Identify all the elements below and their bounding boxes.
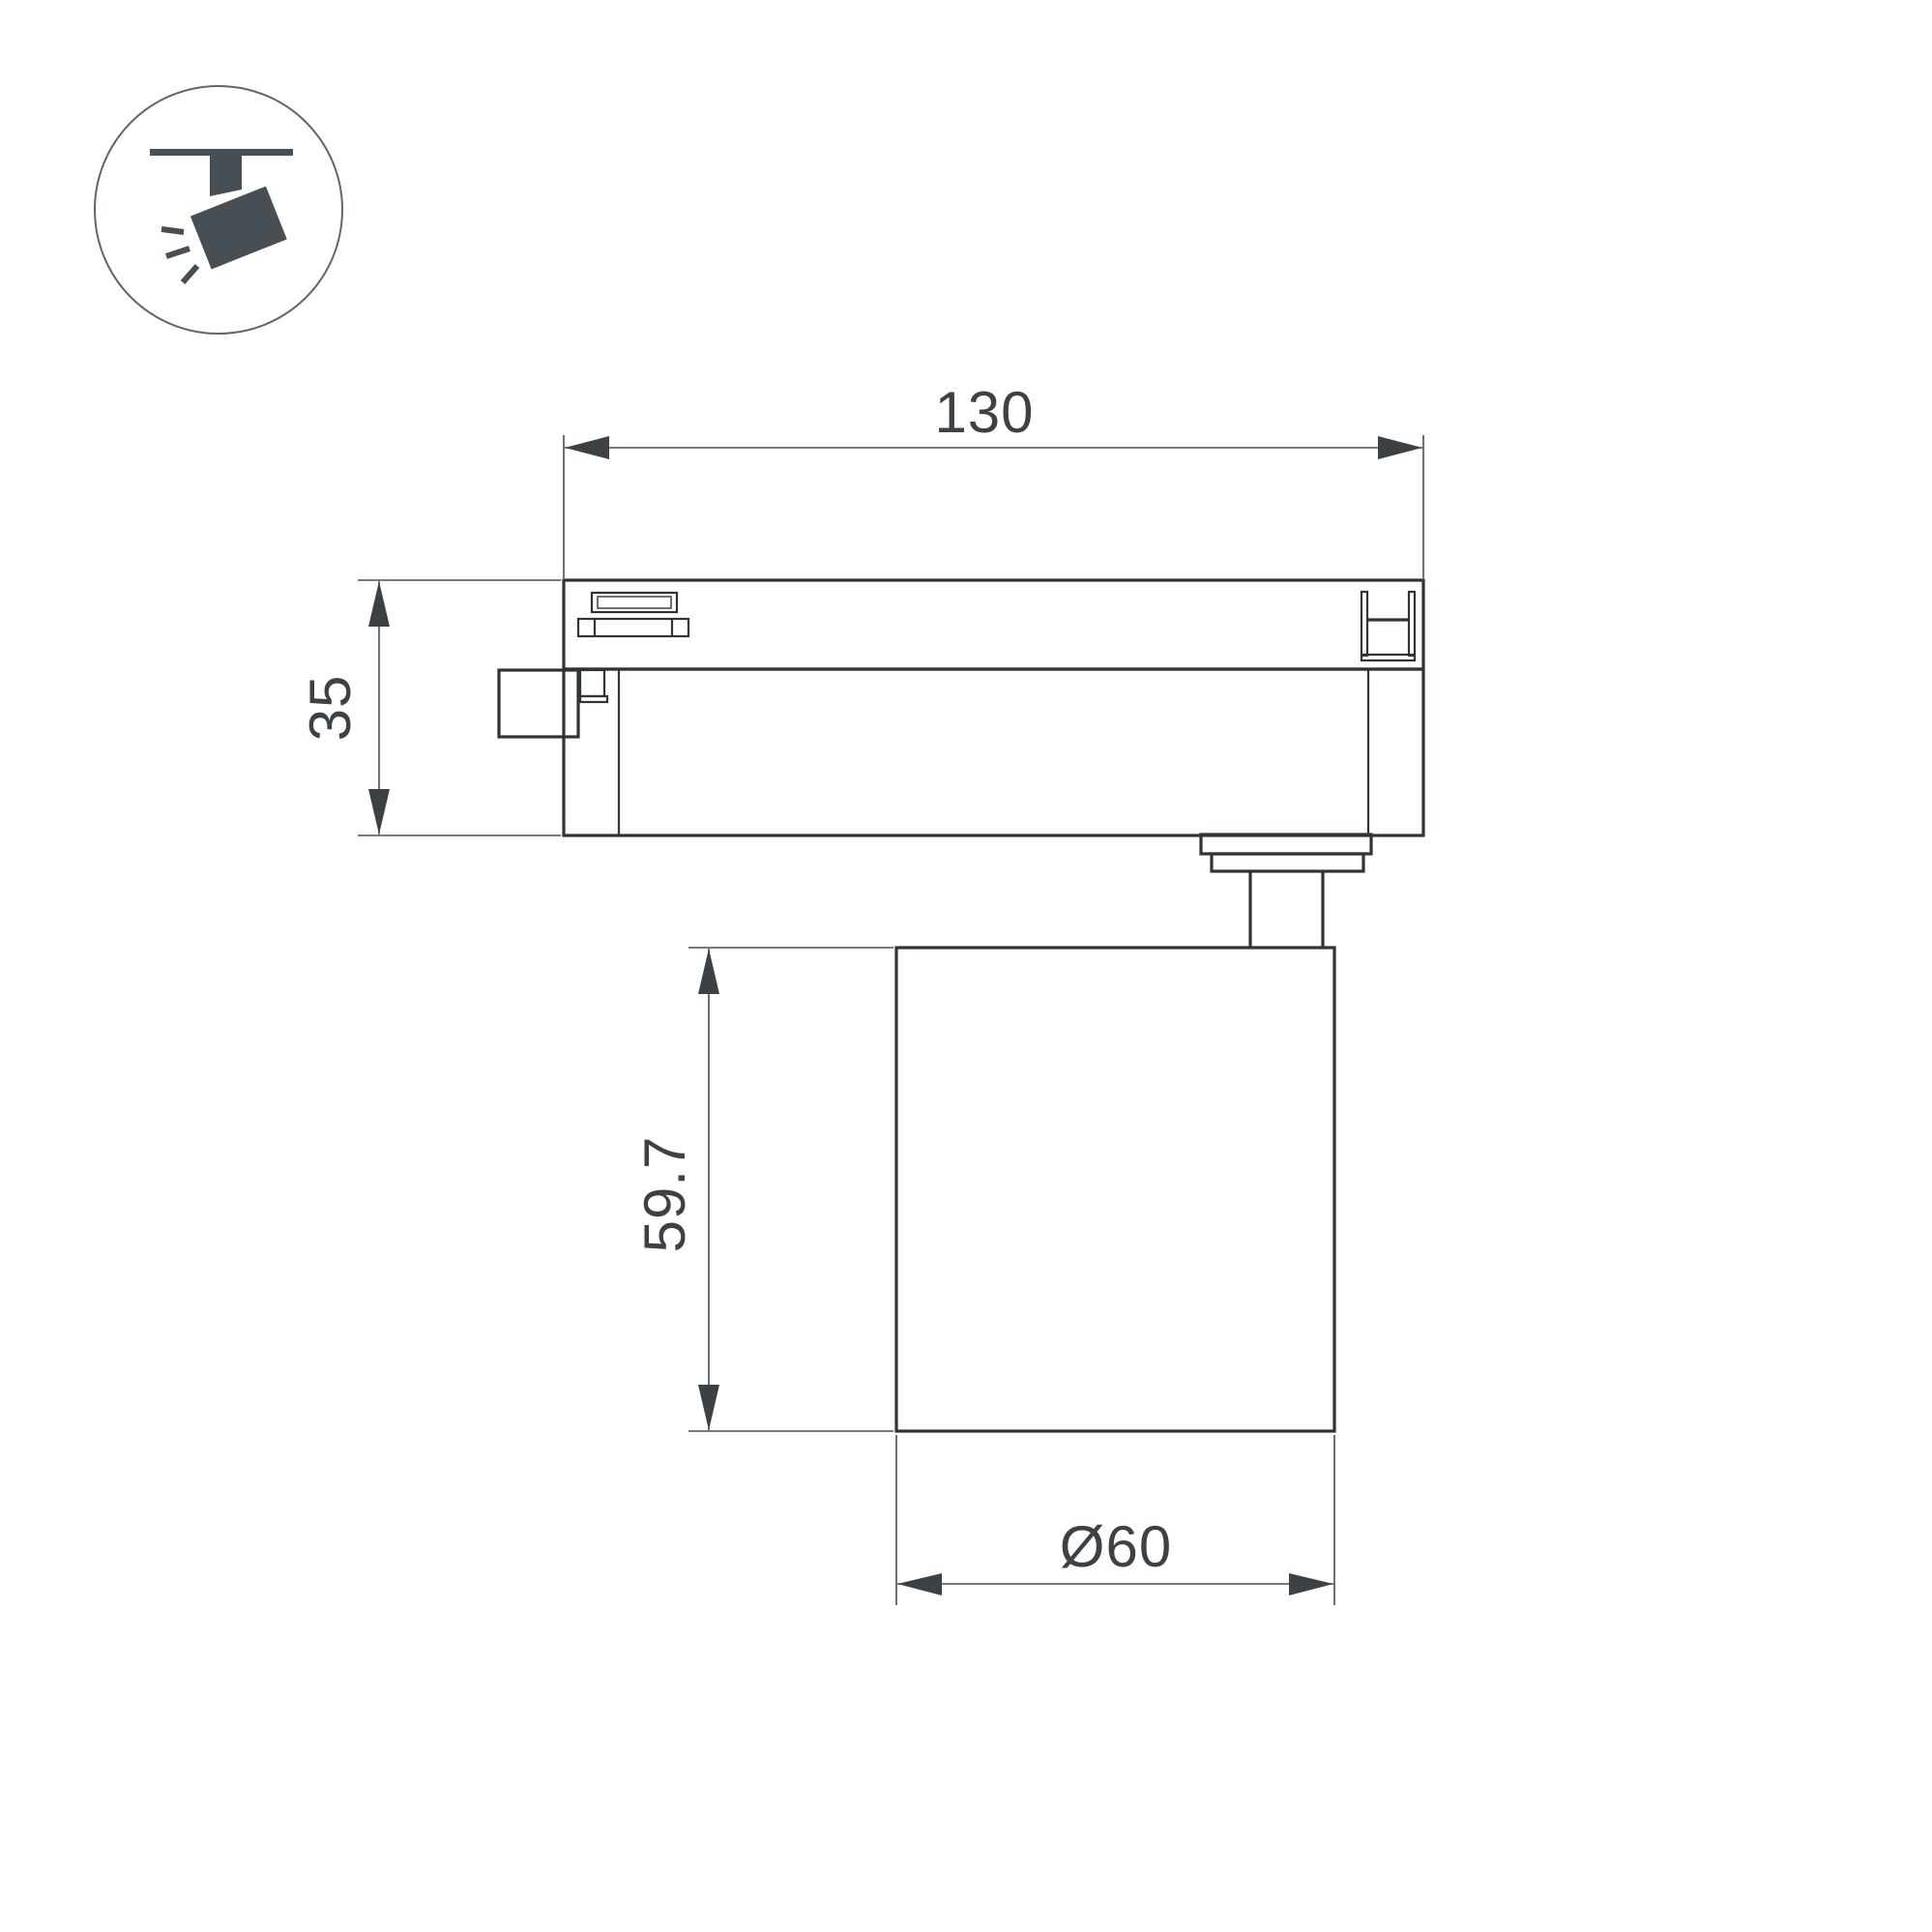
latch-wall-right <box>1409 592 1415 656</box>
adapter-outline <box>564 580 1423 669</box>
housing-outline <box>564 669 1423 835</box>
dimension-label-adapter-length: 130 <box>934 380 1034 445</box>
arrowhead-up <box>368 581 390 627</box>
dimension-adapter-length: 130 <box>564 380 1423 578</box>
icon-track-bar <box>150 149 293 156</box>
track-adapter <box>564 580 1423 669</box>
release-notch <box>580 670 604 696</box>
gear-housing <box>499 669 1423 835</box>
dimension-body-diameter: Ø60 <box>896 1435 1334 1605</box>
dimension-label-body-height: 59.7 <box>632 1136 697 1253</box>
arrowhead-down <box>698 1385 719 1430</box>
arrowhead-right <box>1289 1573 1333 1595</box>
swivel-joint <box>1201 834 1371 948</box>
lamp-body-outline <box>896 948 1334 1431</box>
latch-bracket <box>1361 592 1415 660</box>
arrowhead-left <box>565 436 609 459</box>
icon-stem <box>210 156 242 196</box>
technical-drawing-canvas: 130 35 59.7 Ø60 <box>0 0 1932 1932</box>
dimension-label-adapter-height: 35 <box>298 675 363 742</box>
latch-wall-left <box>1361 592 1367 656</box>
arrowhead-down <box>368 789 390 834</box>
track-light-dimension-drawing: 130 35 59.7 Ø60 <box>0 0 1932 1932</box>
arrowhead-left <box>897 1573 942 1595</box>
lamp-body <box>896 948 1334 1431</box>
icon-light-ray <box>161 229 184 232</box>
contact-clip-upper <box>592 593 677 612</box>
contact-clip-upper-inner <box>598 597 671 608</box>
latch-bottom <box>1361 655 1415 660</box>
dimension-adapter-height: 35 <box>298 580 561 835</box>
arrowhead-right <box>1378 436 1422 459</box>
release-notch-tab <box>580 696 607 702</box>
track-spotlight-icon <box>95 86 342 334</box>
arrowhead-up <box>698 949 719 994</box>
swivel-flange-lower <box>1212 854 1363 871</box>
swivel-flange-upper <box>1201 834 1371 854</box>
side-knob <box>499 670 578 737</box>
dimension-body-height: 59.7 <box>632 948 893 1431</box>
dimension-label-body-diameter: Ø60 <box>1060 1514 1172 1579</box>
